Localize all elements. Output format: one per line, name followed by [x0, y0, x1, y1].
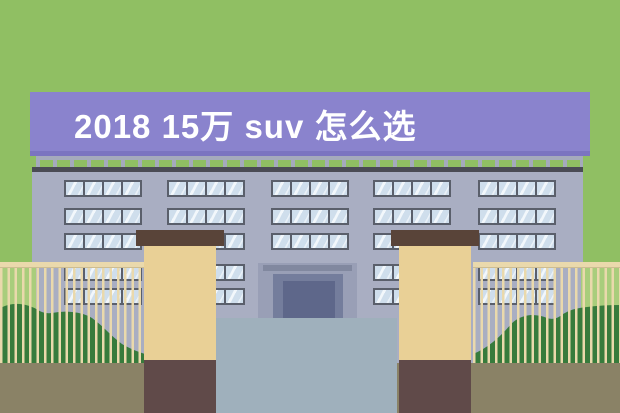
window-pane	[104, 235, 121, 248]
window-pane	[169, 210, 186, 223]
window-pane	[499, 210, 516, 223]
window-pane	[432, 182, 449, 195]
gate-pillar-right-cap	[391, 230, 479, 246]
window-row	[32, 208, 583, 225]
window-pane	[518, 210, 535, 223]
window-pane	[537, 210, 554, 223]
window-pane	[394, 182, 411, 195]
entrance-door-frame	[273, 274, 343, 318]
window-pane	[480, 235, 497, 248]
window-pane	[499, 182, 516, 195]
window-pane	[123, 182, 140, 195]
window-pane	[311, 210, 328, 223]
window-pane	[292, 182, 309, 195]
window-group	[373, 180, 451, 197]
window-pane	[85, 182, 102, 195]
window-pane	[375, 182, 392, 195]
window-pane	[394, 210, 411, 223]
window-pane	[292, 235, 309, 248]
window-pane	[273, 235, 290, 248]
driveway	[216, 318, 397, 413]
window-pane	[480, 182, 497, 195]
entrance-lintel	[263, 265, 352, 271]
window-pane	[66, 182, 83, 195]
window-pane	[226, 290, 243, 303]
window-row	[32, 180, 583, 197]
window-pane	[273, 182, 290, 195]
window-group	[478, 233, 556, 250]
gate-pillar-right	[399, 246, 471, 360]
window-group	[478, 208, 556, 225]
window-group	[271, 208, 349, 225]
window-pane	[104, 210, 121, 223]
window-pane	[311, 182, 328, 195]
window-pane	[207, 182, 224, 195]
window-group	[478, 180, 556, 197]
fence-right	[473, 262, 620, 363]
window-pane	[226, 182, 243, 195]
fence-left	[0, 262, 145, 363]
gate-pillar-left	[144, 246, 216, 360]
window-pane	[188, 182, 205, 195]
gate-pillar-left-cap	[136, 230, 224, 246]
window-group	[64, 233, 142, 250]
window-pane	[537, 182, 554, 195]
window-pane	[413, 210, 430, 223]
window-pane	[375, 290, 392, 303]
window-pane	[375, 210, 392, 223]
window-pane	[330, 210, 347, 223]
window-pane	[518, 182, 535, 195]
window-pane	[104, 182, 121, 195]
window-pane	[66, 210, 83, 223]
window-pane	[85, 235, 102, 248]
window-pane	[85, 210, 102, 223]
window-row	[32, 233, 583, 250]
window-pane	[480, 210, 497, 223]
window-pane	[499, 235, 516, 248]
window-pane	[226, 210, 243, 223]
window-pane	[413, 182, 430, 195]
fence-bars	[0, 268, 145, 363]
window-pane	[226, 266, 243, 279]
window-group	[64, 180, 142, 197]
gate-pillar-left-base	[144, 360, 216, 413]
window-pane	[330, 235, 347, 248]
window-group	[373, 208, 451, 225]
window-pane	[537, 235, 554, 248]
window-pane	[311, 235, 328, 248]
window-pane	[226, 235, 243, 248]
fence-bars	[473, 268, 620, 363]
window-group	[167, 180, 245, 197]
window-pane	[375, 266, 392, 279]
window-pane	[66, 235, 83, 248]
window-group	[167, 208, 245, 225]
entrance-porch	[258, 263, 357, 318]
entrance-door	[283, 281, 335, 318]
window-pane	[518, 235, 535, 248]
window-pane	[375, 235, 392, 248]
window-pane	[330, 182, 347, 195]
illustration-canvas: 2018 15万 suv 怎么选	[0, 0, 620, 413]
sign-banner: 2018 15万 suv 怎么选	[30, 92, 590, 156]
window-pane	[188, 210, 205, 223]
window-pane	[432, 210, 449, 223]
window-pane	[273, 210, 290, 223]
window-pane	[292, 210, 309, 223]
window-group	[271, 180, 349, 197]
window-pane	[169, 182, 186, 195]
sign-title-text: 2018 15万 suv 怎么选	[74, 100, 417, 148]
window-group	[271, 233, 349, 250]
window-pane	[207, 210, 224, 223]
window-group	[64, 208, 142, 225]
window-pane	[123, 210, 140, 223]
gate-pillar-right-base	[399, 360, 471, 413]
